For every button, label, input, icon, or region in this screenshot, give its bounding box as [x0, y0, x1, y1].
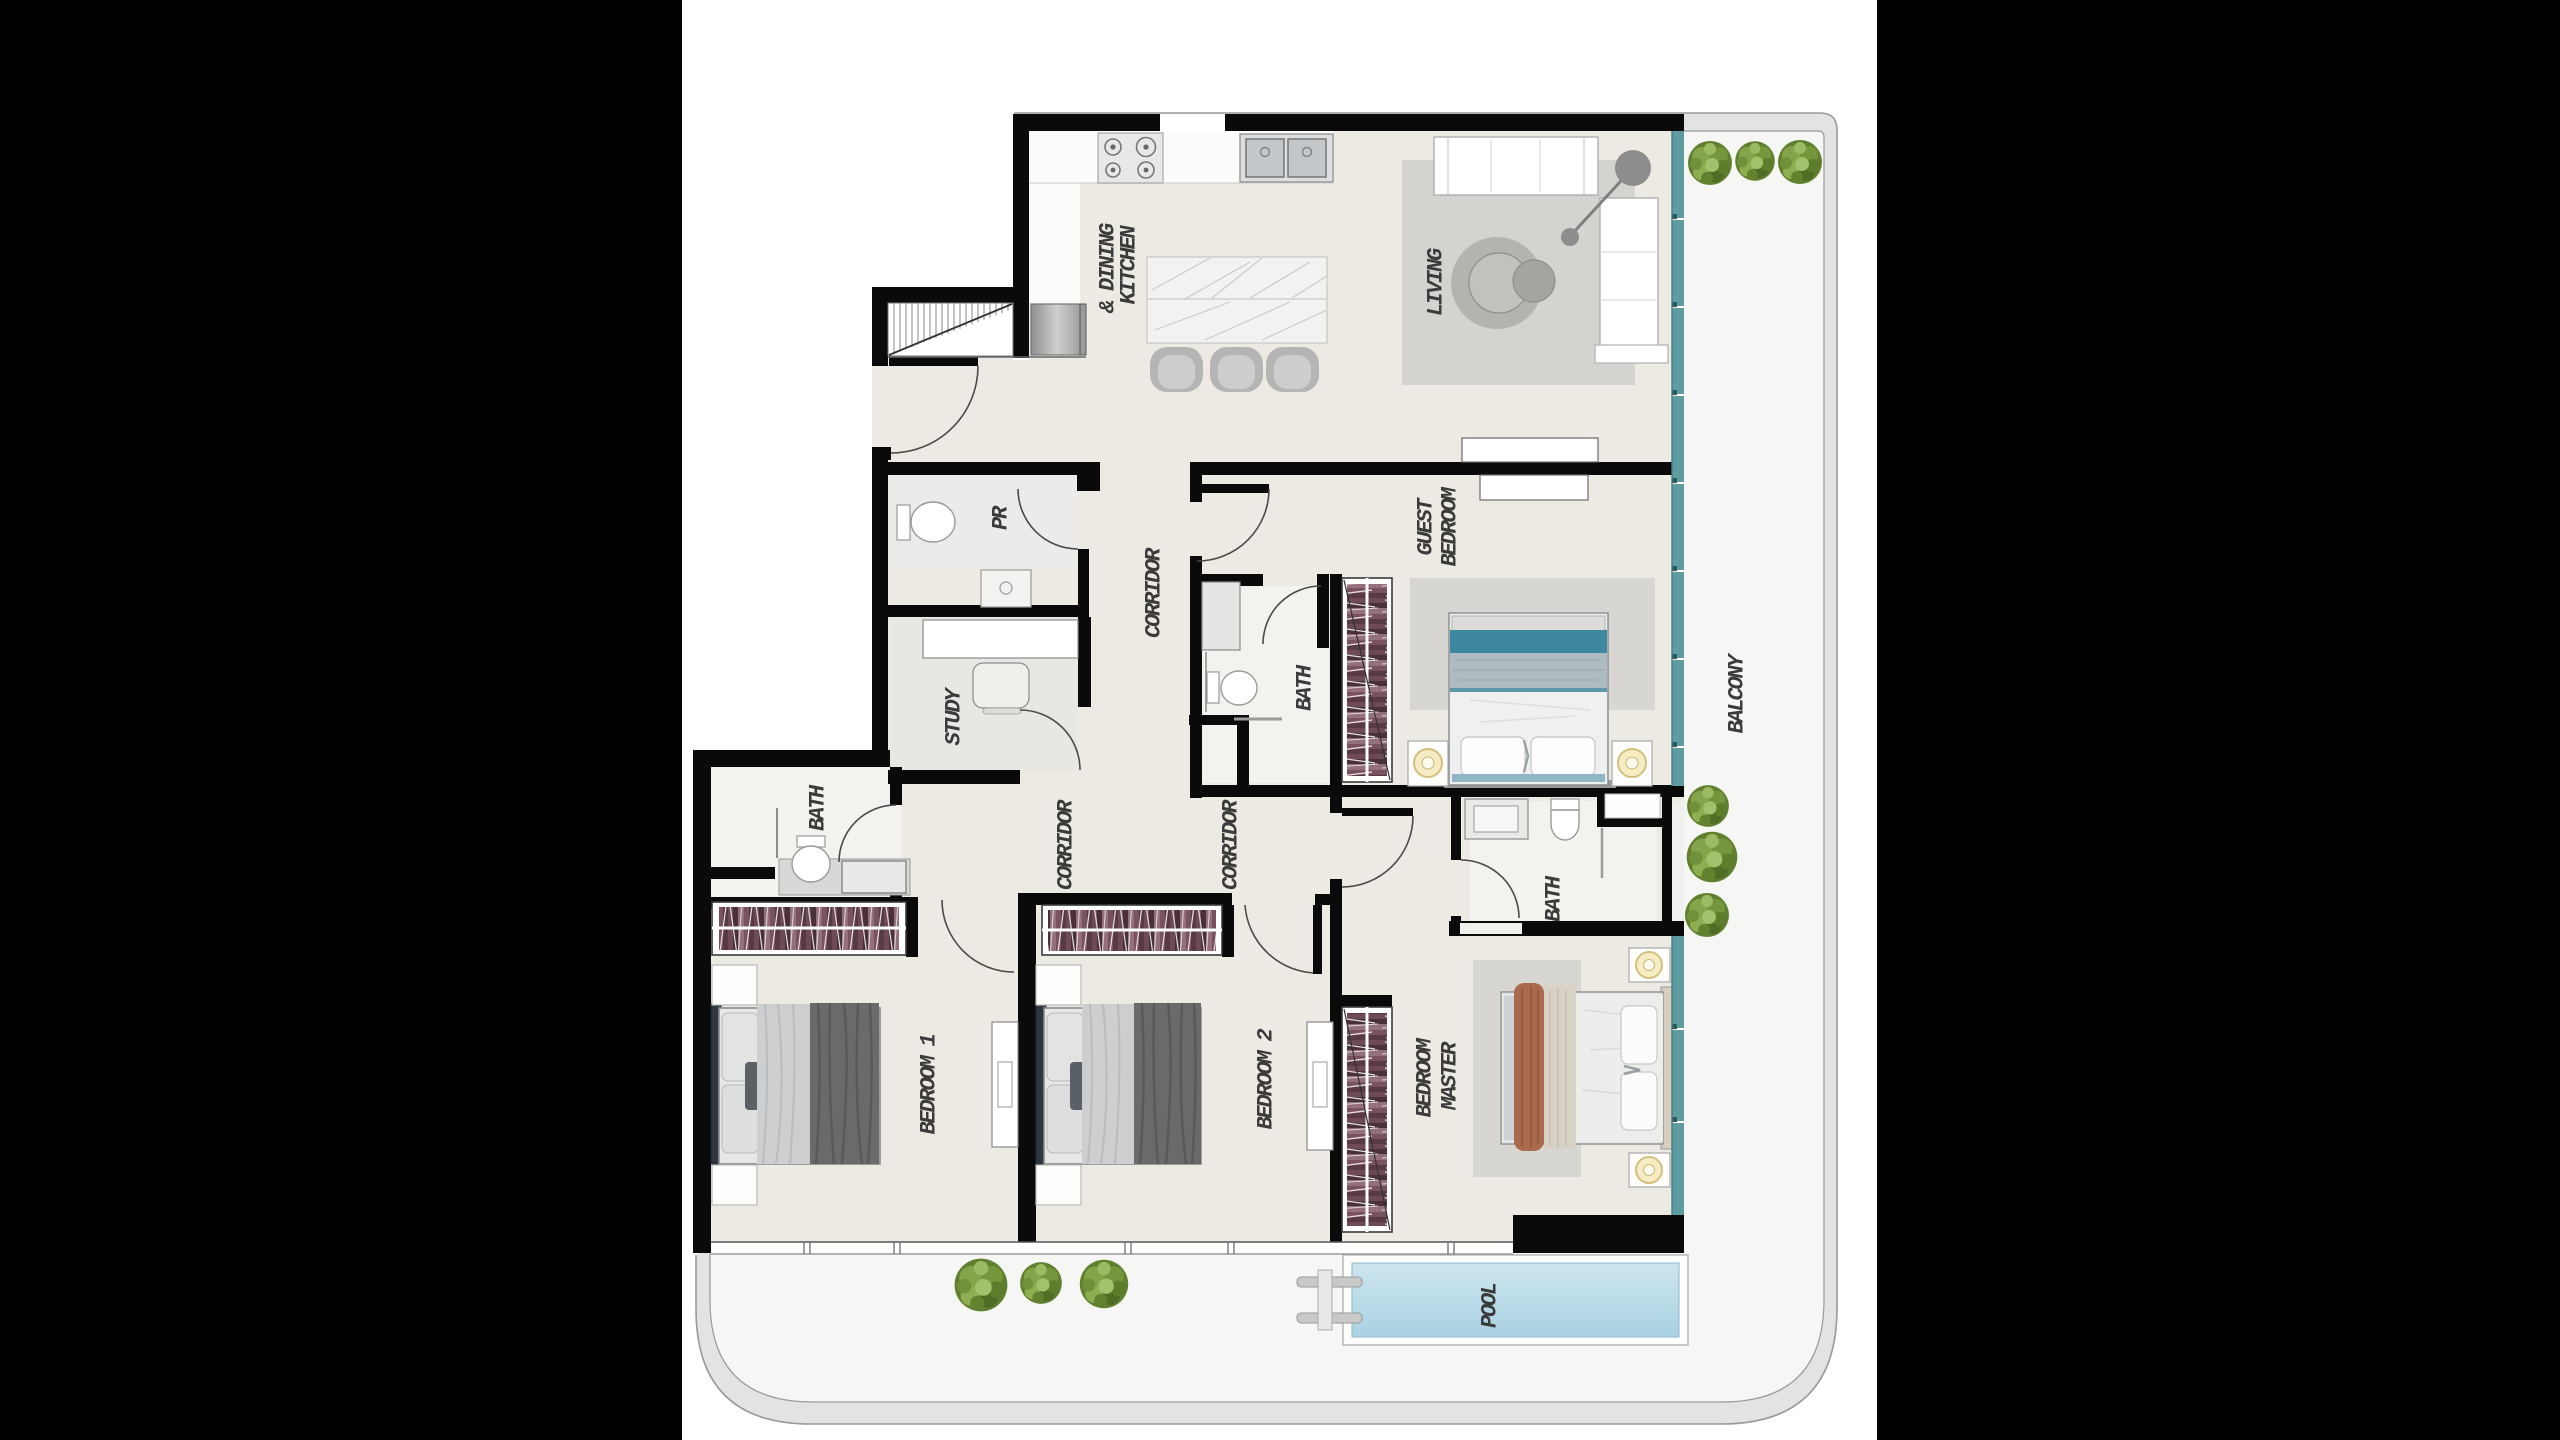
- svg-text:BALCONY: BALCONY: [1725, 652, 1750, 733]
- svg-text:BEDROOM 2: BEDROOM 2: [1254, 1028, 1279, 1129]
- svg-text:& DINING: & DINING: [1096, 223, 1121, 314]
- svg-text:POOL: POOL: [1478, 1283, 1503, 1328]
- svg-text:BEDROOM: BEDROOM: [1438, 486, 1463, 566]
- svg-text:CORRIDOR: CORRIDOR: [1219, 799, 1244, 890]
- svg-text:BEDROOM: BEDROOM: [1413, 1037, 1438, 1117]
- svg-text:MASTER: MASTER: [1438, 1041, 1463, 1111]
- svg-text:BATH: BATH: [806, 784, 831, 831]
- svg-text:PR: PR: [989, 505, 1014, 530]
- svg-text:CORRIDOR: CORRIDOR: [1054, 799, 1079, 890]
- svg-text:BATH: BATH: [1542, 875, 1567, 922]
- svg-text:BEDROOM 1: BEDROOM 1: [917, 1034, 942, 1134]
- svg-text:BATH: BATH: [1293, 664, 1318, 711]
- svg-text:STUDY: STUDY: [942, 686, 967, 745]
- svg-text:CORRIDOR: CORRIDOR: [1142, 547, 1167, 638]
- svg-text:GUEST: GUEST: [1414, 496, 1439, 555]
- svg-text:LIVING: LIVING: [1424, 248, 1449, 316]
